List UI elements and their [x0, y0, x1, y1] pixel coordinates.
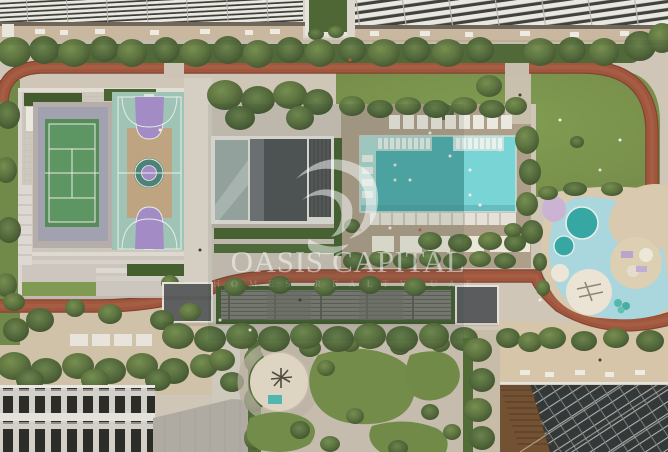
svg-text:OASIS CAPITAL: OASIS CAPITAL	[231, 244, 466, 279]
svg-text:HOMES REALTY UAE: HOMES REALTY UAE	[213, 280, 483, 290]
